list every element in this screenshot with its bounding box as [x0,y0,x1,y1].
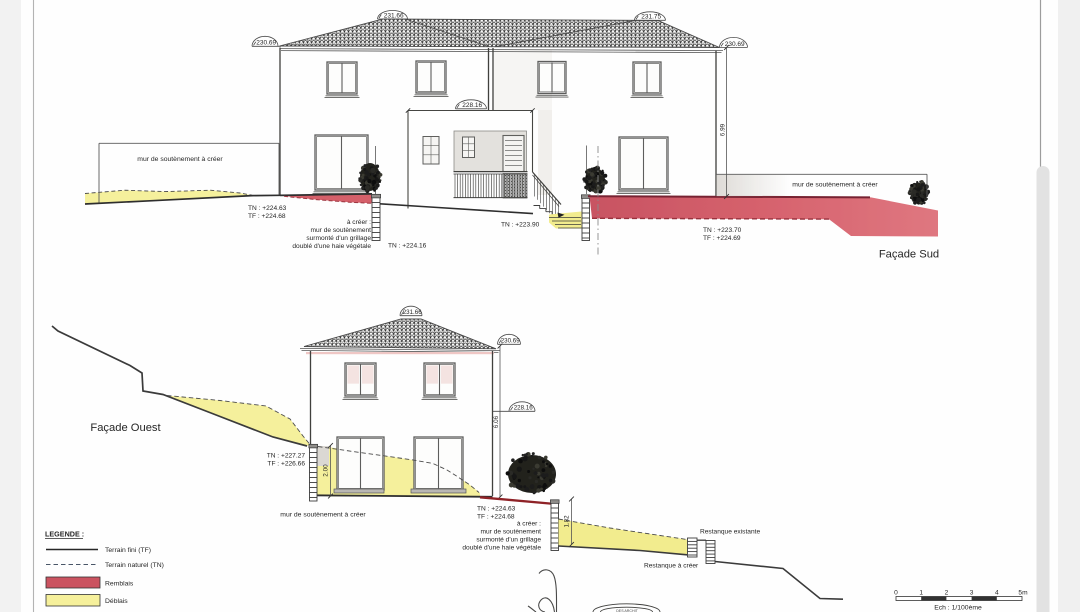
svg-text:TN : +224.63: TN : +224.63 [248,205,287,212]
svg-text:2.00: 2.00 [323,464,330,477]
svg-text:3: 3 [970,590,974,597]
svg-text:230.69: 230.69 [501,338,520,345]
svg-text:TF : +224.68: TF : +224.68 [248,213,286,220]
svg-text:4: 4 [995,590,999,597]
svg-text:surmonté d'un grillage: surmonté d'un grillage [476,537,541,544]
svg-text:1.82: 1.82 [564,515,571,528]
svg-text:Restanque à créer: Restanque à créer [644,563,699,570]
svg-text:TN : +223.90: TN : +223.90 [501,222,540,229]
svg-text:doublé d'une haie végétale: doublé d'une haie végétale [292,243,371,250]
svg-text:TF : +226.66: TF : +226.66 [267,461,305,468]
svg-text:231.66: 231.66 [384,12,404,19]
svg-text:à créer :: à créer : [347,219,371,226]
svg-text:Façade Sud: Façade Sud [879,249,939,261]
svg-text:Restanque existante: Restanque existante [700,529,760,536]
svg-text:à créer :: à créer : [517,521,541,528]
svg-text:Ech : 1/100ème: Ech : 1/100ème [934,605,982,612]
svg-text:mur de soutènement: mur de soutènement [481,529,542,536]
svg-text:6.06: 6.06 [493,415,500,428]
svg-text:TN : +223.70: TN : +223.70 [703,227,742,234]
svg-text:231.66: 231.66 [403,309,422,316]
svg-text:mur de soutènement à créer: mur de soutènement à créer [792,182,878,189]
svg-text:2: 2 [945,590,949,597]
svg-text:6.99: 6.99 [720,123,727,136]
svg-text:Terrain fini (TF): Terrain fini (TF) [105,547,151,554]
svg-text:doublé d'une haie végétale: doublé d'une haie végétale [462,545,541,552]
svg-text:TN : +224.63: TN : +224.63 [477,506,516,513]
svg-text:surmonté d'un grillage: surmonté d'un grillage [306,235,371,242]
svg-text:TF : +224.68: TF : +224.68 [477,514,515,521]
svg-text:TN : +224.16: TN : +224.16 [388,243,427,250]
svg-text:Terrain naturel (TN): Terrain naturel (TN) [105,562,164,569]
svg-text:TF : +224.69: TF : +224.69 [703,235,741,242]
svg-text:228.16: 228.16 [514,405,533,412]
svg-text:LEGENDE :: LEGENDE : [45,530,84,539]
svg-text:5m: 5m [1018,590,1028,597]
svg-text:Façade Ouest: Façade Ouest [90,422,161,434]
svg-text:Déblais: Déblais [105,598,128,605]
svg-text:230.69: 230.69 [256,40,276,47]
svg-text:TN : +227.27: TN : +227.27 [267,453,306,460]
svg-text:Remblais: Remblais [105,581,134,588]
svg-text:0: 0 [894,590,898,597]
svg-text:228.16: 228.16 [462,102,482,109]
svg-text:mur de soutènement à créer: mur de soutènement à créer [137,156,223,163]
svg-text:230.69: 230.69 [725,41,745,48]
svg-text:mur de soutènement à créer: mur de soutènement à créer [280,512,366,519]
svg-text:mur de soutènement: mur de soutènement [311,227,372,234]
svg-text:231.75: 231.75 [641,14,661,21]
svg-text:1: 1 [919,590,923,597]
